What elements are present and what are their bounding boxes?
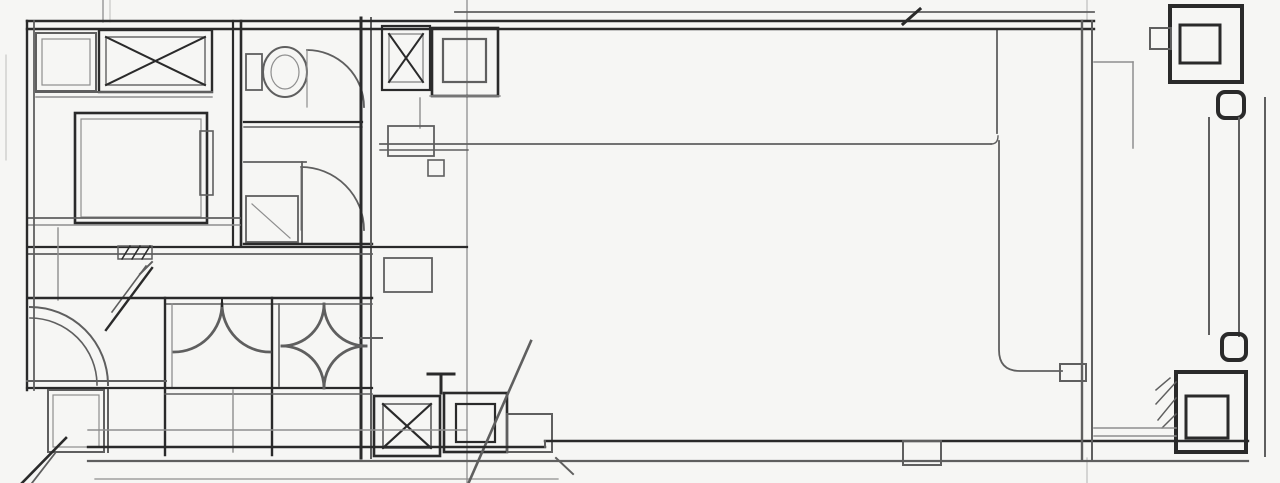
elevator-room: ELV: [69, 113, 214, 223]
entry-door-swings: [30, 266, 152, 385]
bottom-wall: [88, 426, 1248, 474]
astroid-arc: [282, 304, 324, 346]
door-swing-arc: [301, 167, 364, 230]
scan-noise: [60, 2, 1123, 473]
floor-plan-drawing: ELV: [0, 0, 1280, 483]
elevator-label: ELV: [131, 163, 163, 178]
right-wall: [1078, 21, 1133, 460]
astroid-arc: [282, 346, 324, 388]
wall-cabinet: [388, 126, 434, 156]
right-facade: [1094, 6, 1265, 456]
stair-cells: [27, 298, 372, 455]
stair-fan-arc: [174, 304, 222, 352]
lower-left-rooms: [22, 390, 233, 483]
door-swing-arc: [307, 50, 364, 107]
pipe-shaft: [1218, 92, 1244, 118]
break-line: [22, 438, 66, 483]
stair-fan-arc: [222, 304, 270, 352]
toilet-room: [244, 47, 372, 244]
grid-lines: [6, 0, 1087, 483]
core-shaft-row: [36, 21, 241, 246]
corridor: [28, 218, 467, 300]
service-closet: [384, 258, 432, 292]
top-wall: [27, 8, 1094, 30]
left-wall: [23, 21, 166, 390]
top-shaft-boxes: [382, 20, 500, 128]
scanned-floor-plan: ELV: [0, 0, 1280, 483]
wc-tank: [246, 54, 262, 90]
pipe-shaft: [1222, 334, 1246, 360]
